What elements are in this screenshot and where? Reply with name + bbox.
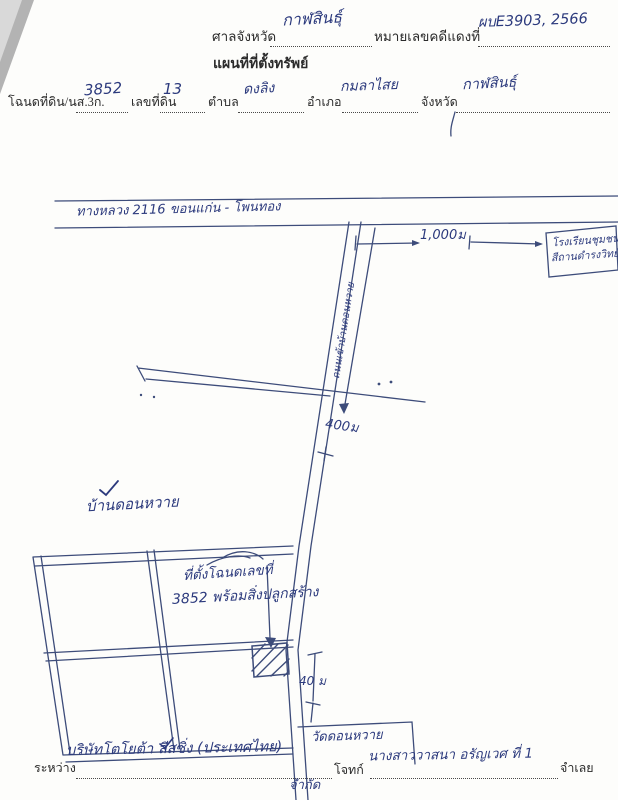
page-title: แผนที่ที่ตั้งทรัพย์: [213, 57, 308, 72]
district-label: อำเภอ: [307, 96, 342, 110]
parcel-value: 13: [163, 81, 182, 98]
subdistrict-dotted-line: [238, 111, 304, 113]
plaintiff-role-label: โจทก์: [334, 764, 364, 778]
deed-value: 3852: [83, 80, 122, 99]
subdistrict-label: ตำบล: [208, 96, 239, 110]
district-value: กมลาไสย: [340, 78, 398, 95]
scanned-court-map-document: ศาลจังหวัด กาฬสินธุ์ หมายเลขคดีแดงที่ ผบ…: [0, 0, 618, 800]
arrowhead: [339, 403, 349, 414]
side-road-lines: [137, 366, 425, 402]
court-dotted-line: [270, 45, 372, 47]
province-value: กาฬสินธุ์: [462, 76, 517, 95]
court-label: ศาลจังหวัด: [212, 30, 276, 45]
province-label: จังหวัด: [421, 96, 458, 110]
temple-label: วัดดอนหวาย: [311, 729, 383, 746]
parcel-dotted-line: [160, 111, 205, 113]
deed-dotted-line: [76, 111, 128, 113]
court-value: กาฬสินธุ์: [282, 8, 343, 29]
defendant-dotted-line: [370, 777, 558, 779]
distance-1000m-label: 1,000ม: [420, 229, 466, 243]
parcel-divider-vertical: [147, 550, 180, 750]
arrowhead: [265, 637, 276, 648]
between-label: ระหว่าง: [34, 762, 76, 776]
arrowhead: [535, 241, 543, 247]
arrowhead: [412, 240, 420, 246]
village-checkmark: [100, 481, 118, 495]
dimension-400m-tick: [318, 447, 333, 461]
case-dotted-line: [478, 45, 610, 47]
defendant-value: นางสาววาสนา อรัญเวศ ที่ 1: [368, 747, 533, 765]
pen-stroke: [451, 112, 455, 136]
parcel-label: เลขที่ดิน: [131, 96, 176, 110]
distance-40m-label: 40 ม: [299, 675, 326, 688]
case-number-label: หมายเลขคดีแดงที่: [374, 30, 480, 45]
plaintiff-value-2: จำกัด: [289, 779, 320, 793]
subdistrict-value: ดงลิง: [243, 81, 275, 98]
province-dotted-line: [456, 111, 610, 113]
district-dotted-line: [342, 111, 418, 113]
defendant-role-label: จำเลย: [560, 762, 594, 776]
